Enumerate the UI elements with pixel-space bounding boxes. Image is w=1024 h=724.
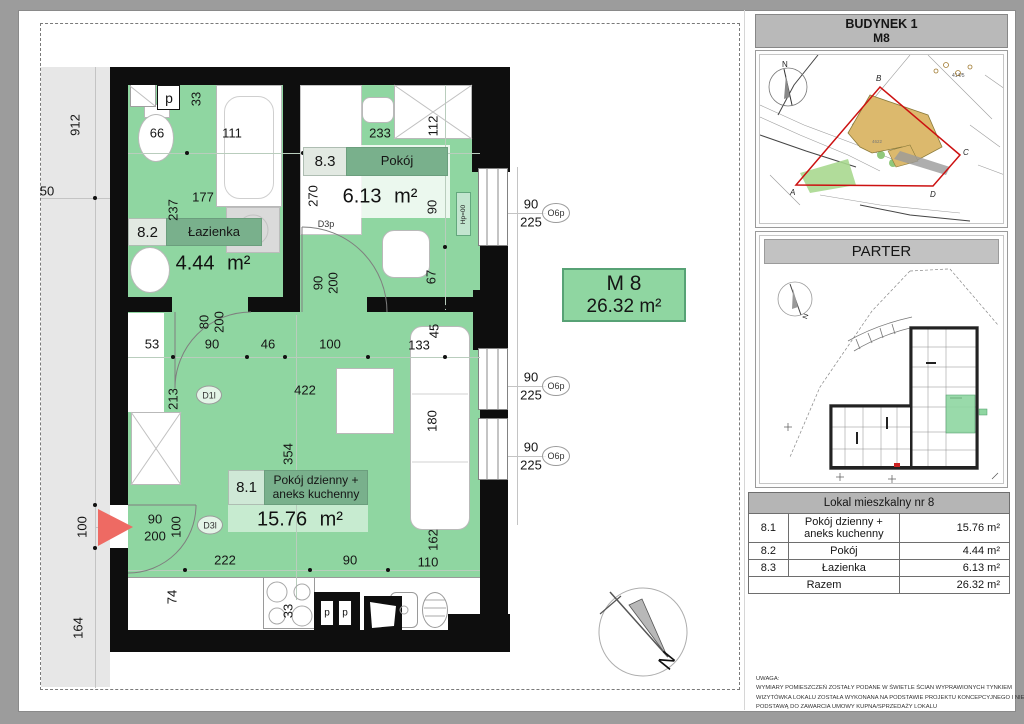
dimension-label: 67 — [424, 270, 439, 284]
note-line: PODSTAWĄ DO ZAWARCIA UMOWY KUPNA/SPRZEDA… — [756, 703, 1008, 712]
fixture-label: p — [324, 608, 330, 619]
window-symbol: O6p — [542, 446, 570, 466]
window — [478, 168, 508, 246]
window-width-label: 90 — [524, 370, 538, 385]
highlighted-unit — [946, 395, 975, 433]
bathtub-basin — [224, 96, 274, 199]
dimension-label: 66 — [150, 126, 164, 141]
wall — [480, 410, 508, 418]
window — [478, 348, 508, 410]
dimension-label: 133 — [408, 338, 430, 353]
room-area-cell: 15.76 m² — [899, 514, 1009, 543]
window-sill-label: Hp=00 — [456, 192, 471, 236]
table — [336, 368, 394, 434]
window-symbol: O6p — [542, 376, 570, 396]
room-name-cell: Pokój — [788, 543, 899, 560]
window-height-label: 225 — [520, 458, 542, 473]
room-name: Pokój — [346, 147, 448, 176]
table-header-row: Lokal mieszkalny nr 8 — [749, 493, 1010, 514]
dimension-label: 180 — [425, 410, 440, 432]
room-area: 4.44 m² — [176, 253, 251, 276]
corner-b: B — [876, 74, 882, 83]
room-number: 8.3 — [303, 147, 346, 176]
dimension-label: 177 — [192, 190, 214, 205]
room-area-cell: 4.44 m² — [899, 543, 1009, 560]
dimension-label: 200 — [144, 529, 166, 544]
site-map: N A B C D 414/5 4622 — [760, 55, 1004, 223]
wall — [472, 67, 510, 172]
map-tree — [877, 151, 885, 159]
parter-plan: N — [760, 267, 1003, 484]
corner-a: A — [789, 188, 795, 197]
dimension-label: 90 — [148, 512, 162, 527]
room-id-cell: 8.3 — [749, 560, 789, 577]
dimension-line — [128, 357, 480, 358]
building-number: 4622 — [872, 139, 883, 144]
dimension-label: 33 — [281, 604, 296, 618]
wall — [110, 297, 172, 312]
sidebar-divider — [744, 10, 745, 710]
note-line: UWAGA: — [756, 675, 1008, 684]
dimension-label: 233 — [369, 126, 391, 141]
dimension-line — [95, 527, 128, 528]
dimension-label: 100 — [319, 337, 341, 352]
room-id-cell: 8.2 — [749, 543, 789, 560]
fixture-label: p — [342, 608, 348, 619]
room-area-cell: 6.13 m² — [899, 560, 1009, 577]
unit-area: 26.32 m² — [587, 296, 662, 318]
highlighted-unit-tag — [979, 409, 987, 415]
entrance-mark — [894, 463, 900, 467]
fixture-label: p — [165, 90, 173, 106]
window — [478, 418, 508, 480]
table-row: 8.3Łazienka6.13 m² — [749, 560, 1010, 577]
wall — [367, 297, 480, 312]
kitchen-sink-right — [422, 592, 448, 628]
window-height-label: 225 — [520, 388, 542, 403]
dimension-label: 90 — [311, 276, 326, 290]
total-label: Razem — [749, 577, 900, 594]
window-height-label: 225 — [520, 215, 542, 230]
dimension-label: 164 — [71, 617, 86, 639]
dimension-line — [517, 167, 518, 525]
room-number: 8.1 — [228, 470, 264, 505]
wall — [110, 67, 128, 505]
room-name-cell: Łazienka — [788, 560, 899, 577]
dimension-label: 270 — [306, 185, 321, 207]
dimension-label: 90 — [343, 553, 357, 568]
dimension-label: 112 — [426, 116, 441, 137]
door-symbol: D1l — [196, 386, 222, 405]
door-symbol: D3l — [197, 516, 223, 535]
dimension-label: 354 — [281, 443, 296, 465]
floor-header: PARTER — [764, 239, 999, 264]
room-name: Łazienka — [166, 218, 262, 246]
unit-summary-box: M 8 26.32 m² — [562, 268, 686, 322]
building-header: BUDYNEK 1 M8 — [755, 14, 1008, 48]
room-name: Pokój dzienny + aneks kuchenny — [264, 470, 368, 505]
parcel-number: 414/5 — [952, 73, 965, 79]
dimension-label: 237 — [166, 199, 181, 221]
note-line: WYMIARY POMIESZCZEŃ ZOSTAŁY PODANE W ŚWI… — [756, 684, 1008, 693]
wall — [283, 67, 300, 312]
window-width-label: 90 — [524, 440, 538, 455]
dimension-label: 111 — [222, 126, 242, 141]
map-north-label: N — [782, 60, 788, 69]
room-8-3-label: 8.3 Pokój — [303, 147, 448, 176]
window-symbol: O6p — [542, 203, 570, 223]
wall — [110, 67, 510, 85]
room-id-cell: 8.1 — [749, 514, 789, 543]
window-width-label: 90 — [524, 197, 538, 212]
dimension-line — [445, 85, 446, 310]
room-name-cell: Pokój dzienny + aneks kuchenny — [788, 514, 899, 543]
room-8-2-label: 8.2 Łazienka — [128, 218, 262, 246]
dimension-line — [95, 67, 96, 688]
room-number: 8.2 — [128, 218, 166, 246]
door-symbol: D3p — [318, 219, 335, 229]
dimension-label: 45 — [427, 324, 442, 338]
dimension-label: 90 — [205, 337, 219, 352]
wall — [248, 297, 300, 312]
dimension-label: 422 — [294, 383, 316, 398]
floor-plan-panel: PARTER N — [755, 231, 1008, 488]
room-area: 15.76 m² — [257, 509, 343, 532]
chair — [362, 97, 394, 123]
dimension-label: 213 — [166, 388, 181, 410]
table-title: Lokal mieszkalny nr 8 — [749, 493, 1010, 514]
wall — [448, 614, 510, 652]
table-total-row: Razem 26.32 m² — [749, 577, 1010, 594]
corner-c: C — [963, 148, 969, 157]
dimension-label: 46 — [261, 337, 275, 352]
dimension-label: 110 — [418, 555, 439, 570]
dimension-line — [296, 315, 297, 600]
dimension-label: 80 — [197, 315, 212, 329]
unit-title: M8 — [873, 31, 890, 45]
dimension-label: 162 — [426, 529, 441, 551]
kitchen-dark-box — [364, 596, 402, 632]
dimension-label: 74 — [165, 590, 180, 604]
unit-name: M 8 — [606, 272, 641, 296]
building-title: BUDYNEK 1 — [845, 17, 917, 31]
dimension-label: 90 — [425, 200, 440, 214]
room-area: 6.13 m² — [343, 186, 418, 209]
dimension-label: 912 — [68, 114, 83, 136]
wardrobe-hall — [131, 412, 181, 485]
dimension-label: 222 — [214, 553, 236, 568]
dimension-label: 200 — [326, 272, 341, 294]
hall-floor — [128, 313, 164, 412]
bathroom-sink — [130, 247, 170, 293]
table-body: 8.1Pokój dzienny + aneks kuchenny15.76 m… — [749, 514, 1010, 577]
dimension-label: 53 — [145, 337, 159, 352]
note-line: WIZYTÓWKA LOKALU ZOSTAŁA WYKONANA NA POD… — [756, 694, 1008, 703]
dimension-label: 100 — [75, 516, 90, 538]
shower-shelf — [130, 84, 156, 107]
room-8-1-label: 8.1 Pokój dzienny + aneks kuchenny — [228, 470, 368, 505]
plan-sheet: { "plan": { "unit_box": {"name": "M 8", … — [0, 0, 1024, 724]
dimension-line — [128, 570, 480, 571]
table-row: 8.2Pokój4.44 m² — [749, 543, 1010, 560]
dimension-label: 100 — [169, 516, 184, 538]
dimension-label: 50 — [40, 184, 54, 199]
table-row: 8.1Pokój dzienny + aneks kuchenny15.76 m… — [749, 514, 1010, 543]
dimension-label: 200 — [212, 311, 227, 333]
notes-block: UWAGA:WYMIARY POMIESZCZEŃ ZOSTAŁY PODANE… — [756, 675, 1008, 712]
site-map-panel: N A B C D 414/5 4622 — [755, 50, 1008, 228]
dimension-label: 33 — [189, 92, 204, 106]
rooms-table: Lokal mieszkalny nr 8 8.1Pokój dzienny +… — [748, 492, 1010, 594]
corner-d: D — [930, 190, 936, 199]
total-area: 26.32 m² — [899, 577, 1009, 594]
